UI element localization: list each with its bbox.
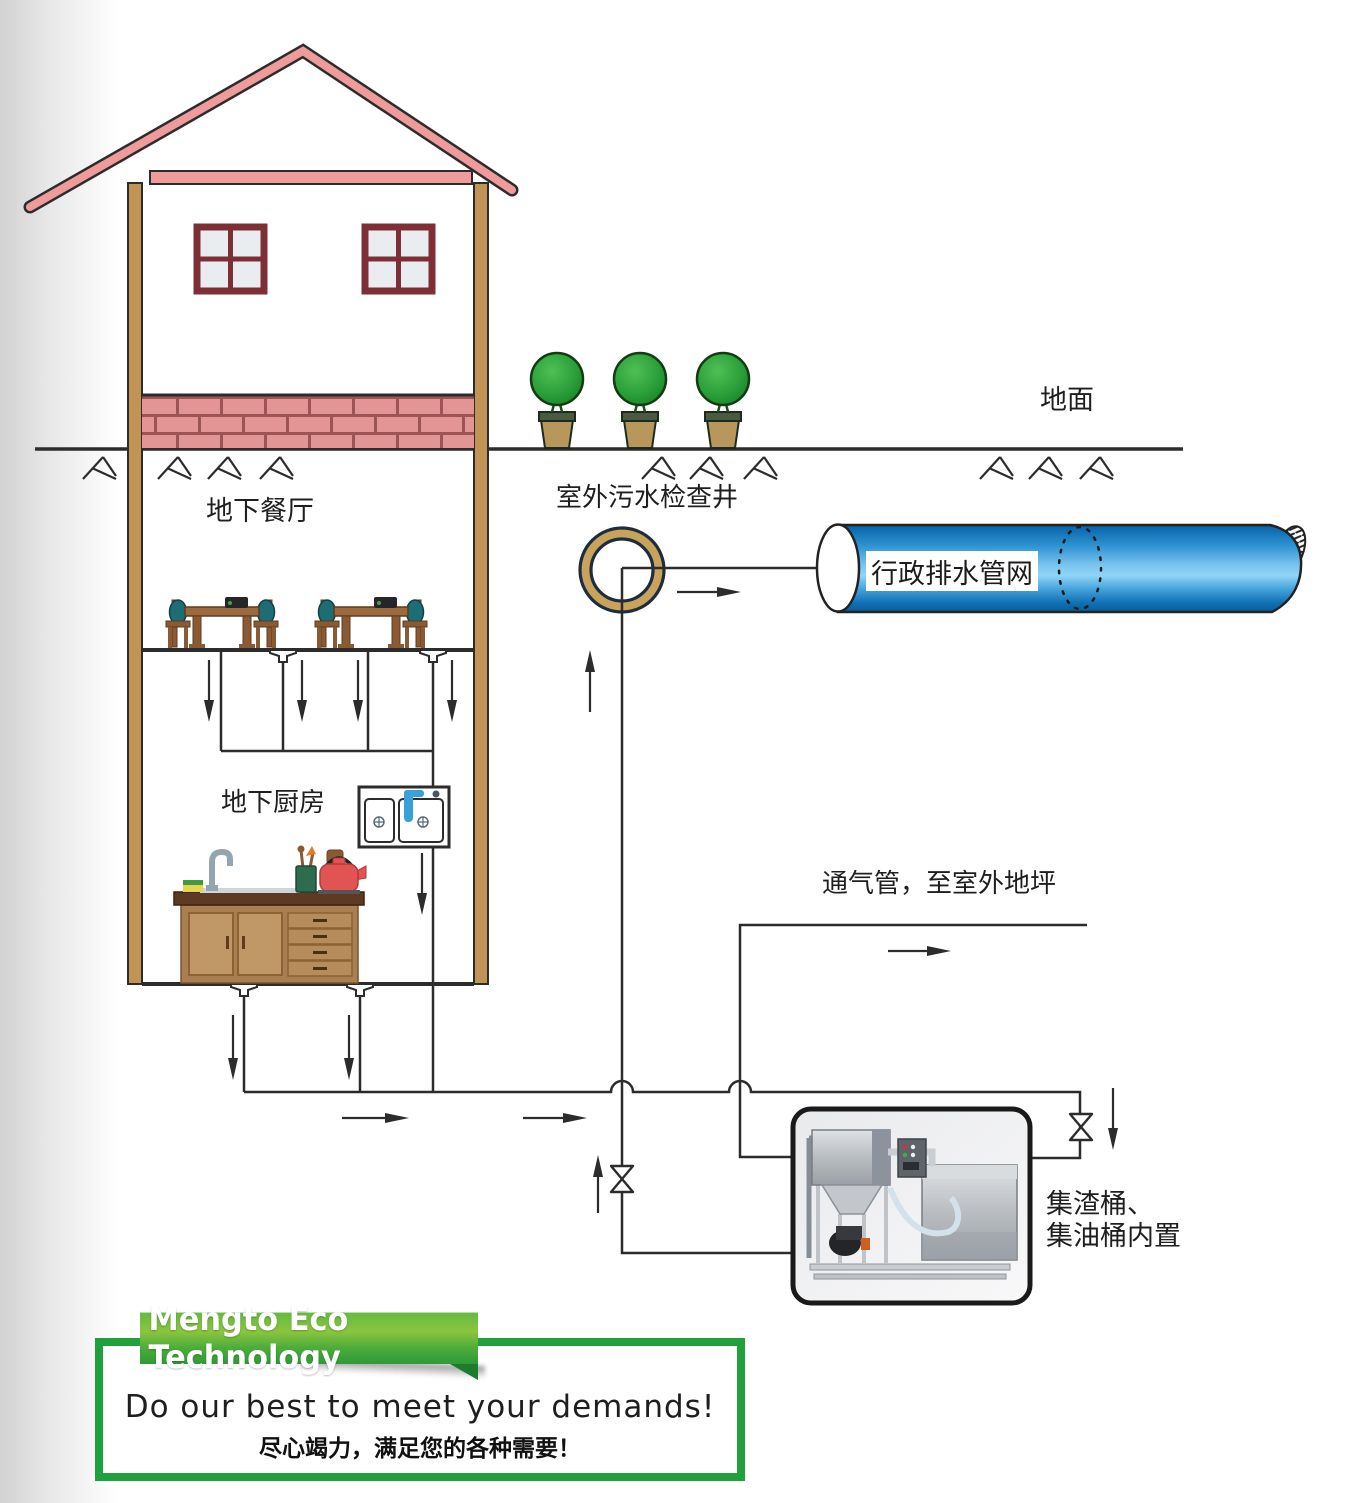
pipe-open-end xyxy=(817,525,859,612)
floor-drain-icon xyxy=(231,984,257,996)
floor-drain-icon xyxy=(347,984,373,996)
riser-pipe xyxy=(622,568,793,1253)
flow-arrow-icon xyxy=(927,946,951,956)
grease-trap-schematic xyxy=(0,0,1347,1503)
brick-band xyxy=(142,396,474,448)
flow-arrow-icon xyxy=(563,1113,587,1123)
brand-ribbon: Mengto Eco Technology xyxy=(140,1312,478,1364)
flow-arrow-icon xyxy=(204,700,214,722)
control-panel xyxy=(898,1139,926,1177)
faucet-icon xyxy=(212,852,230,890)
dining-set-icon xyxy=(166,597,278,648)
kitchen-counter-icon xyxy=(174,846,366,984)
label-municipal-network: 行政排水管网 xyxy=(866,551,1038,591)
flow-arrow-icon xyxy=(593,1155,603,1177)
label-equipment-line1: 集渣桶、 xyxy=(1046,1190,1154,1220)
flow-arrow-icon xyxy=(297,700,307,722)
grease-trap-equipment xyxy=(793,1109,1030,1303)
flow-arrow-icon xyxy=(344,1058,354,1080)
slogan-english: Do our best to meet your demands! xyxy=(95,1389,745,1425)
drawers xyxy=(288,913,352,976)
dining-sets xyxy=(166,597,427,648)
diagram-canvas: 地面 室外污水检查井 地下餐厅 地下厨房 通气管，至室外地坪 集渣桶、 集油桶内… xyxy=(0,0,1347,1503)
valve-icon xyxy=(611,1166,633,1192)
slogan-chinese: 尽心竭力，满足您的各种需要！ xyxy=(95,1429,745,1463)
label-basement-kitchen: 地下厨房 xyxy=(221,789,325,818)
flow-arrow-icon xyxy=(228,1058,238,1080)
sponge-icon xyxy=(183,884,203,892)
flow-arrow-icon xyxy=(385,1113,409,1123)
utensil-cup-icon xyxy=(296,846,316,893)
potted-trees xyxy=(531,353,749,448)
valve-icon xyxy=(1070,1114,1092,1140)
label-basement-restaurant: 地下餐厅 xyxy=(206,497,314,527)
floor-drain-icon xyxy=(420,650,446,662)
flow-arrow-icon xyxy=(417,893,427,915)
flow-arrow-icon xyxy=(585,650,595,672)
left-wall xyxy=(128,183,142,984)
floor-drain-icon xyxy=(270,650,296,662)
attic-band xyxy=(150,171,472,184)
potted-tree-icon xyxy=(531,353,583,448)
grass-tufts xyxy=(83,457,1113,479)
label-equipment-line2: 集油桶内置 xyxy=(1046,1222,1181,1252)
brand-name: Mengto Eco Technology xyxy=(148,1300,469,1376)
kettle-icon xyxy=(318,850,366,894)
right-wall xyxy=(474,183,488,984)
flow-arrow-icon xyxy=(353,700,363,722)
potted-tree-icon xyxy=(614,353,666,448)
window-icon xyxy=(365,227,432,291)
dining-set-icon xyxy=(315,597,427,648)
label-vent-pipe: 通气管，至室外地坪 xyxy=(822,870,1056,899)
potted-tree-icon xyxy=(697,353,749,448)
label-inspection-well: 室外污水检查井 xyxy=(556,484,738,513)
wall-sink-icon xyxy=(359,787,449,847)
flow-arrow-icon xyxy=(717,587,741,597)
window-icon xyxy=(197,227,264,291)
label-ground: 地面 xyxy=(1040,386,1094,416)
flow-arrow-icon xyxy=(1108,1128,1118,1150)
flow-arrow-icon xyxy=(447,700,457,722)
